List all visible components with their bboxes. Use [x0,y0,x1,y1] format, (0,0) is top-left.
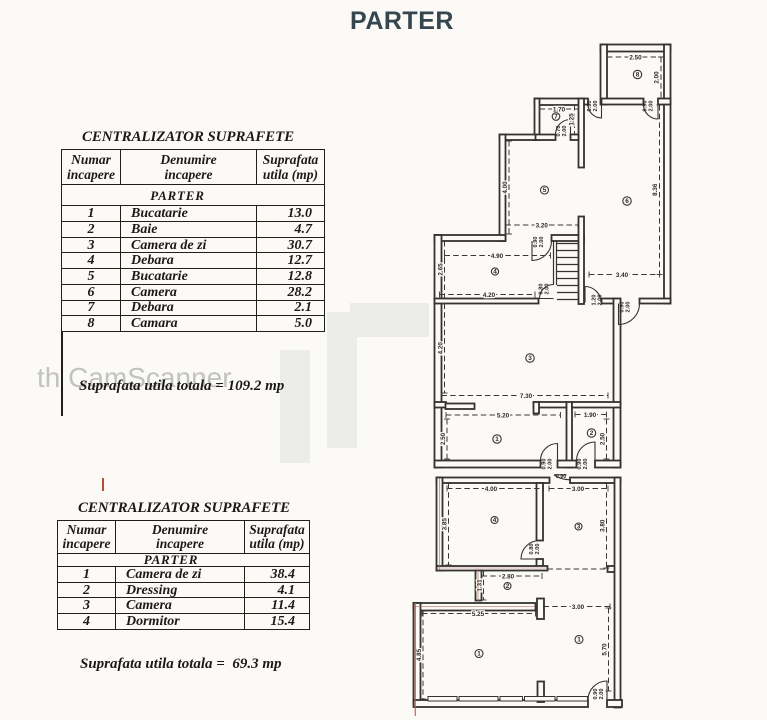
svg-text:3.80: 3.80 [600,519,607,532]
svg-text:0.90: 0.90 [642,101,648,112]
svg-text:3.00: 3.00 [572,604,585,611]
svg-text:4.00: 4.00 [502,181,509,194]
svg-text:2.65: 2.65 [438,263,445,276]
svg-text:2.00: 2.00 [593,101,599,112]
svg-text:2.00: 2.00 [599,689,605,700]
svg-text:0.90: 0.90 [577,459,583,470]
svg-text:8.36: 8.36 [652,183,659,196]
svg-text:2.00: 2.00 [548,459,554,470]
svg-text:4.00: 4.00 [485,486,498,493]
svg-text:3.85: 3.85 [442,518,449,531]
svg-text:0.80: 0.80 [529,544,535,555]
svg-text:5.25: 5.25 [472,611,485,618]
svg-text:2: 2 [590,430,594,437]
svg-text:0.90: 0.90 [619,302,625,313]
svg-text:4.20: 4.20 [438,342,445,355]
svg-text:7.30: 7.30 [520,393,533,400]
svg-text:4.20: 4.20 [483,292,496,299]
svg-text:2.00: 2.00 [535,544,541,555]
svg-text:4.90: 4.90 [491,253,504,260]
svg-text:1.20: 1.20 [591,295,597,306]
svg-text:4.85: 4.85 [416,648,423,661]
svg-text:1.25: 1.25 [569,113,576,126]
svg-text:2.00: 2.00 [649,101,655,112]
svg-text:4: 4 [493,517,497,524]
svg-text:3.40: 3.40 [616,272,629,279]
svg-text:5: 5 [543,187,547,194]
svg-text:2.00: 2.00 [654,71,661,84]
svg-text:2.80: 2.80 [502,573,515,580]
svg-text:3: 3 [577,524,581,531]
svg-text:2.50: 2.50 [629,54,642,61]
svg-text:0.70: 0.70 [556,126,562,137]
svg-text:2.00: 2.00 [545,284,551,295]
svg-text:5.70: 5.70 [602,643,609,656]
svg-text:2.00: 2.00 [539,237,545,248]
svg-text:3.00: 3.00 [572,486,585,493]
svg-text:0.80: 0.80 [538,284,544,295]
svg-text:2.00: 2.00 [626,302,632,313]
svg-text:0.90: 0.90 [541,459,547,470]
svg-text:0.90: 0.90 [593,689,599,700]
svg-text:0.90: 0.90 [556,474,567,480]
svg-text:2.00: 2.00 [583,459,589,470]
svg-text:1.70: 1.70 [553,106,566,113]
svg-text:6: 6 [625,198,629,205]
svg-text:5.20: 5.20 [497,412,510,419]
svg-text:2.00: 2.00 [562,126,568,137]
svg-text:2.00: 2.00 [598,295,604,306]
svg-text:0.90: 0.90 [533,237,539,248]
svg-text:1: 1 [477,651,481,658]
svg-text:4: 4 [493,269,497,276]
svg-text:3.20: 3.20 [536,222,549,229]
svg-text:7: 7 [554,114,558,121]
svg-text:1.90: 1.90 [584,412,597,419]
svg-text:2.50: 2.50 [440,432,447,445]
svg-text:0.90: 0.90 [587,101,593,112]
svg-text:8: 8 [636,72,640,79]
svg-text:1: 1 [495,436,499,443]
svg-text:3: 3 [528,355,532,362]
svg-text:2.50: 2.50 [600,432,607,445]
svg-text:1: 1 [577,637,581,644]
svg-text:2: 2 [506,583,510,590]
